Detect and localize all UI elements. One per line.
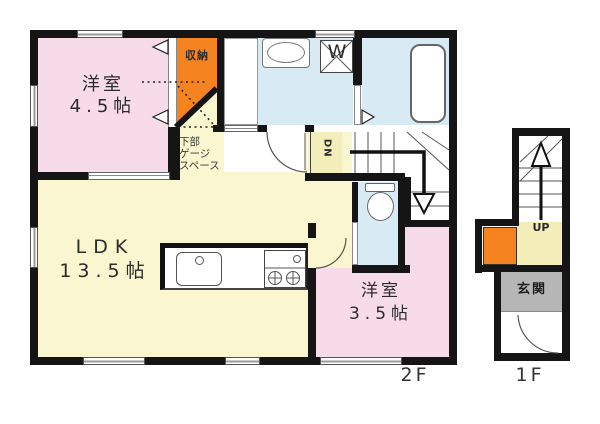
wall-washroom-south-a [213, 125, 224, 132]
kitchen-stove [264, 250, 306, 288]
shoe-storage-1f [483, 227, 517, 265]
wall-washroom-south-c [305, 125, 314, 132]
stairs-down-label: DN [321, 130, 332, 166]
window-room45-left [30, 85, 38, 127]
ldk-name: LDK [30, 238, 180, 258]
wall-stairs-run-left [405, 177, 411, 222]
wall-2f-right [449, 30, 457, 365]
room-3-5-size: 3.5帖 [316, 306, 446, 324]
under-space-line3: スペース [179, 161, 220, 172]
ldk-size: 13.5帖 [20, 262, 190, 282]
wall-washroom-south-b [258, 125, 267, 132]
wall-2f-left [30, 30, 38, 365]
wall-1f-bottom [494, 353, 570, 361]
window-washroom-top [315, 30, 355, 38]
wall-1f-right [562, 128, 570, 361]
wall-toilet-south [352, 265, 410, 273]
room-4-5-size: 4.5帖 [38, 98, 168, 117]
room-3-5-name: 洋室 [326, 283, 436, 301]
sliding-door-room45-ldk [88, 172, 170, 180]
wall-1f-stairs-left [512, 128, 519, 226]
toilet-bowl [367, 192, 394, 221]
wall-storage-hallcloset [217, 38, 224, 130]
floor1-label: 1F [500, 366, 560, 386]
toilet-door [352, 222, 358, 265]
window-ldk-bottom-a [83, 357, 145, 365]
washer-label: W [322, 43, 352, 63]
washroom-door-gap [267, 125, 305, 132]
wall-room35-left [308, 268, 316, 358]
wall-toilet-right [398, 177, 405, 267]
floorplan-canvas: 洋室 4.5帖 LDK 13.5帖 洋室 3.5帖 収納 下部 ゲージ スペース… [0, 0, 600, 424]
room-4-5-name: 洋室 [48, 76, 158, 95]
wall-room35-left-stub [308, 223, 316, 238]
stairs-up-arrow [532, 143, 550, 220]
wall-1f-entry-left [494, 272, 501, 361]
wall-washroom-bath [353, 38, 362, 85]
storage-label: 収納 [176, 50, 218, 62]
toilet-tank [365, 183, 395, 192]
wall-toilet-left-upper [352, 182, 358, 222]
under-space-line1: 下部 [179, 137, 200, 148]
window-ldk-bottom-b [225, 357, 260, 365]
room-3-5-nook-floor [405, 227, 449, 268]
wall-room45-south [30, 172, 88, 180]
entrance-label: 玄関 [501, 283, 563, 297]
stairs-up-label: UP [526, 222, 556, 234]
window-room45-top [77, 30, 123, 38]
window-room35-bottom [320, 357, 402, 365]
wall-1f-mid [475, 265, 563, 272]
sliding-door-hall-closet [224, 125, 258, 132]
wall-stairs-bottom [405, 220, 449, 227]
floor2-label: 2F [385, 366, 445, 386]
hall-closet-floor [224, 38, 258, 125]
washbasin-bowl [267, 42, 305, 63]
bath-sliding-door [354, 85, 361, 125]
under-space-line2: ゲージ [179, 149, 210, 160]
stairs-1f-treads [519, 136, 562, 207]
bathtub [410, 44, 446, 123]
kitchen-faucet [195, 256, 204, 265]
wall-stairs-south [305, 173, 405, 181]
